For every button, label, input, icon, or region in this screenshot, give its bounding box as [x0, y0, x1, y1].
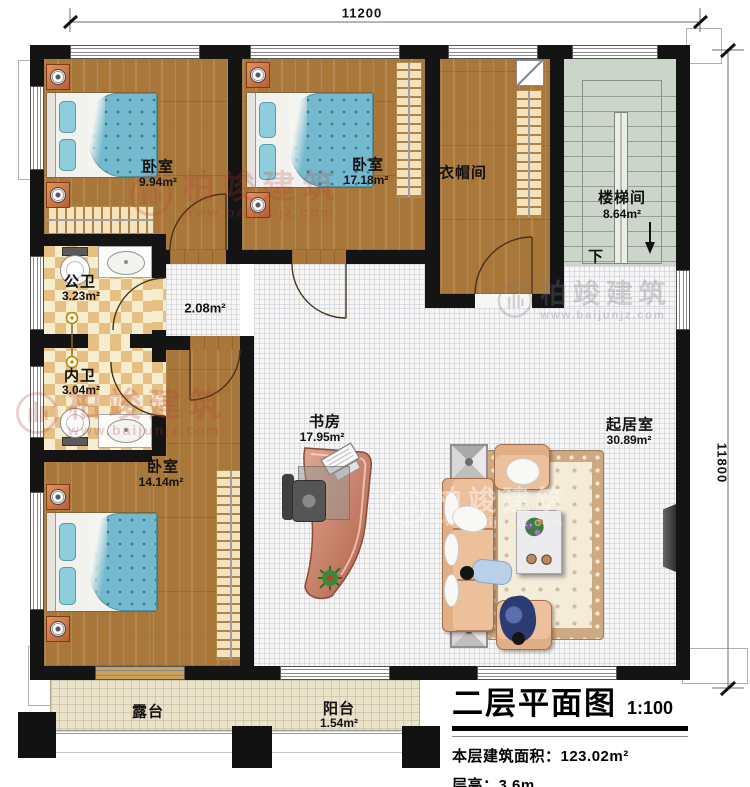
tv	[663, 504, 676, 572]
wall-baths-b	[130, 334, 152, 348]
room-area-living: 30.89m²	[607, 433, 652, 447]
bedroom2-door-opening	[292, 250, 346, 264]
wall-hall-b	[346, 250, 425, 264]
wall-bath-bedroom3	[44, 450, 152, 462]
flower-vase	[520, 514, 550, 542]
cloak-corner-unit	[516, 60, 544, 86]
sink-public-bath	[98, 246, 152, 278]
sofa-back-cushion	[444, 574, 459, 607]
cloak-door-opening	[475, 294, 532, 308]
wall-bedroom3-top-a	[152, 336, 190, 350]
bedroom3-door-opening	[190, 336, 240, 350]
window-left-bedroom3	[30, 492, 44, 610]
terrace-balcony-floor	[50, 680, 420, 732]
balcony-slider	[280, 666, 390, 680]
room-area-bedroom2: 17.18m²	[344, 173, 389, 187]
column	[232, 726, 272, 768]
window-top-bedroom2	[250, 45, 400, 59]
room-area-balcony: 1.54m²	[320, 716, 358, 730]
wall-hall-a	[226, 250, 292, 264]
column	[18, 712, 56, 758]
stair-down-label: 下	[588, 246, 604, 267]
nightstand	[46, 64, 70, 90]
wall-cloak-stair	[550, 59, 564, 308]
plan-title: 二层平面图	[452, 678, 617, 723]
leader-box-top-right	[686, 28, 722, 64]
public-bath-door-opening	[152, 278, 166, 330]
window-top-bedroom1	[70, 45, 200, 59]
room-label-bedroom1: 卧室	[142, 156, 174, 177]
window-top-cloak	[448, 45, 538, 59]
nightstand	[46, 182, 70, 208]
room-area-bedroom1: 9.94m²	[139, 175, 177, 189]
room-label-cloakroom: 衣帽间	[439, 162, 487, 183]
person-head	[460, 566, 474, 580]
armchair-cushion	[506, 458, 540, 485]
wall-bedroom3-right	[240, 336, 254, 666]
title-block: 二层平面图 1:100 本层建筑面积：123.02m² 层高：3.6m	[452, 678, 750, 787]
wall-cloak-bottom-b	[532, 294, 564, 308]
window-right-hall	[676, 270, 690, 330]
office-chair	[292, 480, 326, 522]
hall-floor-3	[564, 266, 676, 308]
bed-bedroom3	[46, 512, 158, 612]
hall-floor-2	[254, 264, 425, 308]
column	[402, 726, 440, 768]
floor-height-text: 层高：3.6m	[452, 774, 750, 787]
window-left-bedroom1	[30, 86, 44, 170]
title-underline-thin	[452, 736, 688, 737]
floor-area-text: 本层建筑面积：123.02m²	[452, 745, 750, 766]
title-underline	[452, 726, 688, 731]
study-desk-group	[280, 438, 400, 613]
wall-baths-a	[44, 334, 88, 348]
wall-cloak-bottom-a	[425, 294, 475, 308]
wardrobe-bedroom1	[46, 206, 154, 234]
dimension-top-label: 11200	[342, 6, 382, 21]
wardrobe-bedroom2	[396, 62, 422, 198]
room-area-stairwell: 8.64m²	[603, 207, 641, 221]
wall-bedroom2-cloak	[425, 59, 440, 308]
person-lying	[471, 558, 513, 586]
bedroom1-door-opening	[170, 250, 226, 264]
wall-bedroom1-2	[228, 59, 242, 250]
sink-private-bath	[98, 414, 152, 448]
hallway-area-label: 2.08m²	[184, 301, 225, 316]
window-left-bath2	[30, 366, 44, 438]
room-label-living: 起居室	[606, 414, 654, 435]
toilet-private-bath	[60, 408, 90, 446]
room-area-bedroom3: 14.14m²	[139, 475, 184, 489]
window-left-bath1	[30, 256, 44, 330]
cups	[524, 552, 554, 566]
plan-scale: 1:100	[627, 698, 673, 719]
room-label-study: 书房	[309, 411, 341, 432]
window-top-stair	[572, 45, 658, 59]
room-label-terrace: 露台	[132, 701, 164, 722]
room-label-bedroom3: 卧室	[147, 456, 179, 477]
room-area-study: 17.95m²	[300, 430, 345, 444]
nightstand	[246, 192, 270, 218]
private-bath-door-opening	[152, 362, 166, 416]
wall-bedroom1-bath	[44, 234, 166, 246]
side-table-top	[450, 444, 488, 480]
person-head	[512, 632, 525, 645]
nightstand	[46, 484, 70, 510]
wardrobe-cloakroom	[516, 90, 542, 218]
room-area-private-bath: 3.04m²	[62, 383, 100, 397]
room-label-stairwell: 楼梯间	[598, 187, 646, 208]
sofa-back-cushion	[444, 533, 459, 566]
room-label-bedroom2: 卧室	[352, 154, 384, 175]
dimension-right-label: 11800	[715, 443, 730, 483]
room-area-public-bath: 3.23m²	[62, 289, 100, 303]
nightstand	[46, 616, 70, 642]
terrace-door	[95, 666, 185, 680]
nightstand	[246, 62, 270, 88]
wall-right	[676, 45, 690, 680]
floor-plan: 11200 11800 卧室 9.94m² 卧室 17.18m² 衣帽间 楼梯间…	[0, 0, 750, 787]
